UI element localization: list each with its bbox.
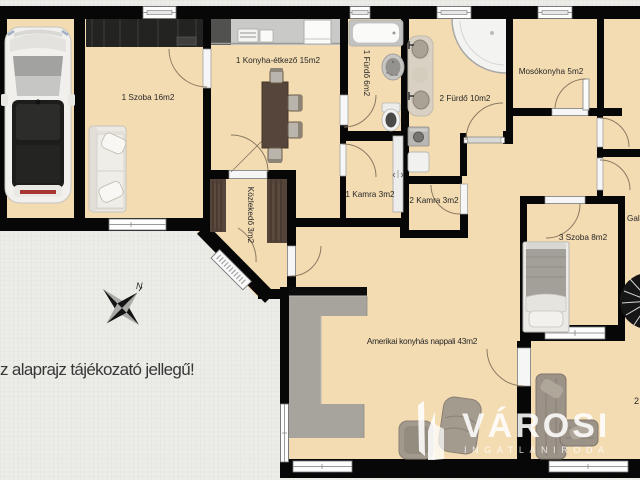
svg-text:Közlekedő 3m2: Közlekedő 3m2 [246, 187, 255, 244]
svg-text:1 Kamra 3m2: 1 Kamra 3m2 [345, 190, 395, 199]
svg-text:z alaprajz tájékozató jellegű!: z alaprajz tájékozató jellegű! [0, 360, 194, 379]
svg-text:Mosókonyha 5m2: Mosókonyha 5m2 [519, 67, 584, 76]
svg-text:VÁROSI: VÁROSI [462, 407, 610, 445]
svg-text:Amerikai konyhás nappali 43m2: Amerikai konyhás nappali 43m2 [367, 336, 478, 346]
svg-text:2 Szoba 10m2: 2 Szoba 10m2 [634, 396, 640, 406]
svg-text:Galéria: Galéria [627, 214, 640, 223]
svg-text:2 Kamra 3m2: 2 Kamra 3m2 [409, 196, 459, 205]
svg-text:1 Szoba 16m2: 1 Szoba 16m2 [122, 93, 175, 102]
svg-text:2 Fürdő 10m2: 2 Fürdő 10m2 [440, 94, 491, 103]
svg-text:INGATLANIRODA: INGATLANIRODA [464, 445, 610, 455]
svg-text:1 Konyha-étkező 15m2: 1 Konyha-étkező 15m2 [236, 56, 321, 65]
svg-text:3 Szoba 8m2: 3 Szoba 8m2 [559, 233, 608, 242]
svg-text:1 Fürdő 6m2: 1 Fürdő 6m2 [362, 50, 371, 97]
svg-text:N: N [136, 281, 143, 291]
